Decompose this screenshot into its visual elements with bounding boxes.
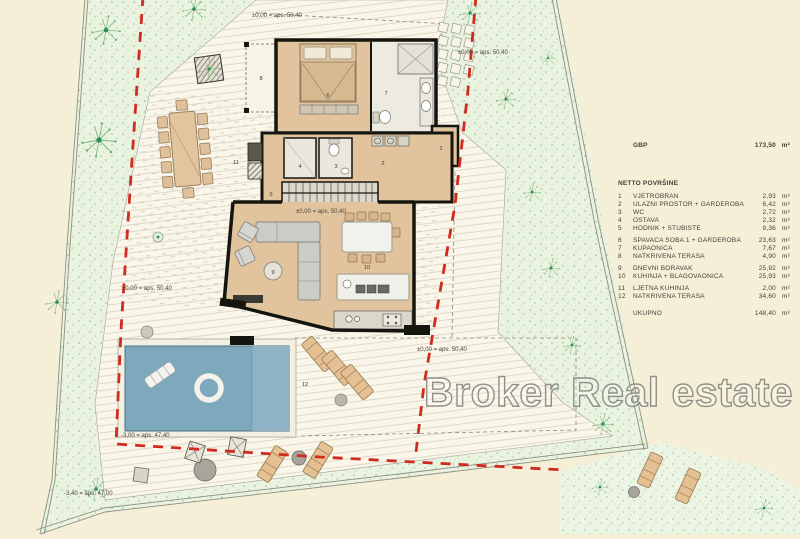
row-unit: m² xyxy=(776,245,790,253)
room-label-9: 9 xyxy=(271,270,274,276)
row-value: 34,60 xyxy=(750,293,776,301)
row-value: 9,36 xyxy=(750,225,776,233)
room-label-2: 2 xyxy=(381,161,384,167)
row-no: 11 xyxy=(618,285,633,293)
room-label-6: 6 xyxy=(326,93,329,99)
row-no: 10 xyxy=(618,273,633,281)
row-value: 7,67 xyxy=(750,245,776,253)
room-label-3: 3 xyxy=(334,164,337,170)
elevation-label: ±0,00 = aps. 50,40 xyxy=(252,13,302,19)
row-no: 1 xyxy=(618,193,633,201)
room-label-7: 7 xyxy=(384,91,387,97)
row-no: 8 xyxy=(618,253,633,261)
elevation-label: ±0,00 = aps. 50,40 xyxy=(296,209,346,215)
row-name: DNEVNI BORAVAK xyxy=(633,265,750,273)
legend-row: 6 SPAVAĆA SOBA 1 + GARDEROBA 23,63 m² xyxy=(618,237,790,245)
row-name: HODNIK + STUBIŠTE xyxy=(633,225,750,233)
site-plan-canvas: 1 2 3 4 5 6 7 8 9 10 11 12 ±0,00 = aps. … xyxy=(0,0,800,534)
row-unit: m² xyxy=(776,217,790,225)
legend-row: 11 LJETNA KUHINJA 2,00 m² xyxy=(618,285,790,293)
laundry-units xyxy=(372,136,409,146)
shower xyxy=(398,44,433,74)
legend-row: 4 OSTAVA 2,32 m² xyxy=(618,217,790,225)
row-name: LJETNA KUHINJA xyxy=(633,285,750,293)
row-unit: m² xyxy=(776,209,790,217)
legend-section-title: NETTO POVRŠINE xyxy=(618,180,790,188)
row-no: 5 xyxy=(618,225,633,233)
gbp-unit: m² xyxy=(776,142,790,150)
row-value: 2,32 xyxy=(750,217,776,225)
legend-row: 2 ULAZNI PROSTOR + GARDEROBA 6,42 m² xyxy=(618,201,790,209)
elevation-label: ±0,00 = aps. 50,40 xyxy=(417,347,467,353)
wardrobe xyxy=(300,105,358,114)
broker-watermark: Broker Real estate xyxy=(424,369,793,416)
bathroom-vanity xyxy=(420,78,433,126)
summer-kitchen-11 xyxy=(248,143,262,179)
room-label-10: 10 xyxy=(364,265,370,271)
legend-row: 5 HODNIK + STUBIŠTE 9,36 m² xyxy=(618,225,790,233)
row-value: 4,90 xyxy=(750,253,776,261)
legend-row: 12 NATKRIVENA TERASA 34,60 m² xyxy=(618,293,790,301)
elevation-label: ±0,00 = aps. 50,40 xyxy=(458,50,508,56)
row-no: 7 xyxy=(618,245,633,253)
room-label-4: 4 xyxy=(298,164,301,170)
row-name: KUHINJA + BLAGOVAONICA xyxy=(633,273,750,281)
staircase-5 xyxy=(282,182,378,204)
row-name: ULAZNI PROSTOR + GARDEROBA xyxy=(633,201,750,209)
legend-row: 10 KUHINJA + BLAGOVAONICA 25,93 m² xyxy=(618,273,790,281)
row-name: SPAVAĆA SOBA 1 + GARDEROBA xyxy=(633,237,750,245)
gbp-label: GBP xyxy=(633,142,750,150)
legend-total-row: UKUPNO 148,40 m² xyxy=(618,310,790,318)
row-unit: m² xyxy=(776,293,790,301)
total-unit: m² xyxy=(776,310,790,318)
row-name: OSTAVA xyxy=(633,217,750,225)
row-unit: m² xyxy=(776,265,790,273)
kitchen-counter xyxy=(334,311,412,329)
row-name: WC xyxy=(633,209,750,217)
total-value: 148,40 xyxy=(750,310,776,318)
elevation-label: -3,40 = aps. 47,00 xyxy=(64,491,113,497)
legend-row: 3 WC 2,72 m² xyxy=(618,209,790,217)
row-no: 4 xyxy=(618,217,633,225)
legend-gbp-row: GBP 173,50 m² xyxy=(618,142,790,150)
row-value: 25,92 xyxy=(750,265,776,273)
row-no: 2 xyxy=(618,201,633,209)
gbp-value: 173,50 xyxy=(750,142,776,150)
row-no: 12 xyxy=(618,293,633,301)
swimming-pool xyxy=(118,336,296,437)
row-value: 2,00 xyxy=(750,285,776,293)
row-unit: m² xyxy=(776,201,790,209)
toilet xyxy=(373,111,391,124)
row-unit: m² xyxy=(776,285,790,293)
legend-row: 1 VJETROBRAN 2,93 m² xyxy=(618,193,790,201)
row-unit: m² xyxy=(776,225,790,233)
legend-row: 7 KUPAONICA 7,67 m² xyxy=(618,245,790,253)
room-label-8: 8 xyxy=(259,76,262,82)
row-value: 2,72 xyxy=(750,209,776,217)
house-upper-block xyxy=(276,40,436,133)
area-legend: GBP 173,50 m² NETTO POVRŠINE 1 VJETROBRA… xyxy=(618,142,790,318)
row-name: VJETROBRAN xyxy=(633,193,750,201)
row-no: 6 xyxy=(618,237,633,245)
row-no: 3 xyxy=(618,209,633,217)
elevation-label: ±0,00 = aps. 50,40 xyxy=(122,286,172,292)
room-label-1: 1 xyxy=(439,146,442,152)
row-value: 6,42 xyxy=(750,201,776,209)
row-unit: m² xyxy=(776,253,790,261)
room-label-5: 5 xyxy=(269,192,272,198)
row-unit: m² xyxy=(776,193,790,201)
row-unit: m² xyxy=(776,237,790,245)
row-name: KUPAONICA xyxy=(633,245,750,253)
row-value: 2,93 xyxy=(750,193,776,201)
kitchen-island xyxy=(337,274,409,300)
tree-planter xyxy=(194,54,223,83)
room-label-11: 11 xyxy=(233,160,239,166)
row-value: 25,93 xyxy=(750,273,776,281)
row-unit: m² xyxy=(776,273,790,281)
legend-row: 9 DNEVNI BORAVAK 25,92 m² xyxy=(618,265,790,273)
row-no: 9 xyxy=(618,265,633,273)
total-label: UKUPNO xyxy=(633,310,750,318)
row-name: NATKRIVENA TERASA xyxy=(633,293,750,301)
row-value: 23,63 xyxy=(750,237,776,245)
elevation-label: -3,00 = aps. 47,40 xyxy=(121,433,170,439)
room-label-12: 12 xyxy=(302,382,308,388)
row-name: NATKRIVENA TERASA xyxy=(633,253,750,261)
pool-tech-block xyxy=(230,336,254,345)
legend-row: 8 NATKRIVENA TERASA 4,90 m² xyxy=(618,253,790,261)
